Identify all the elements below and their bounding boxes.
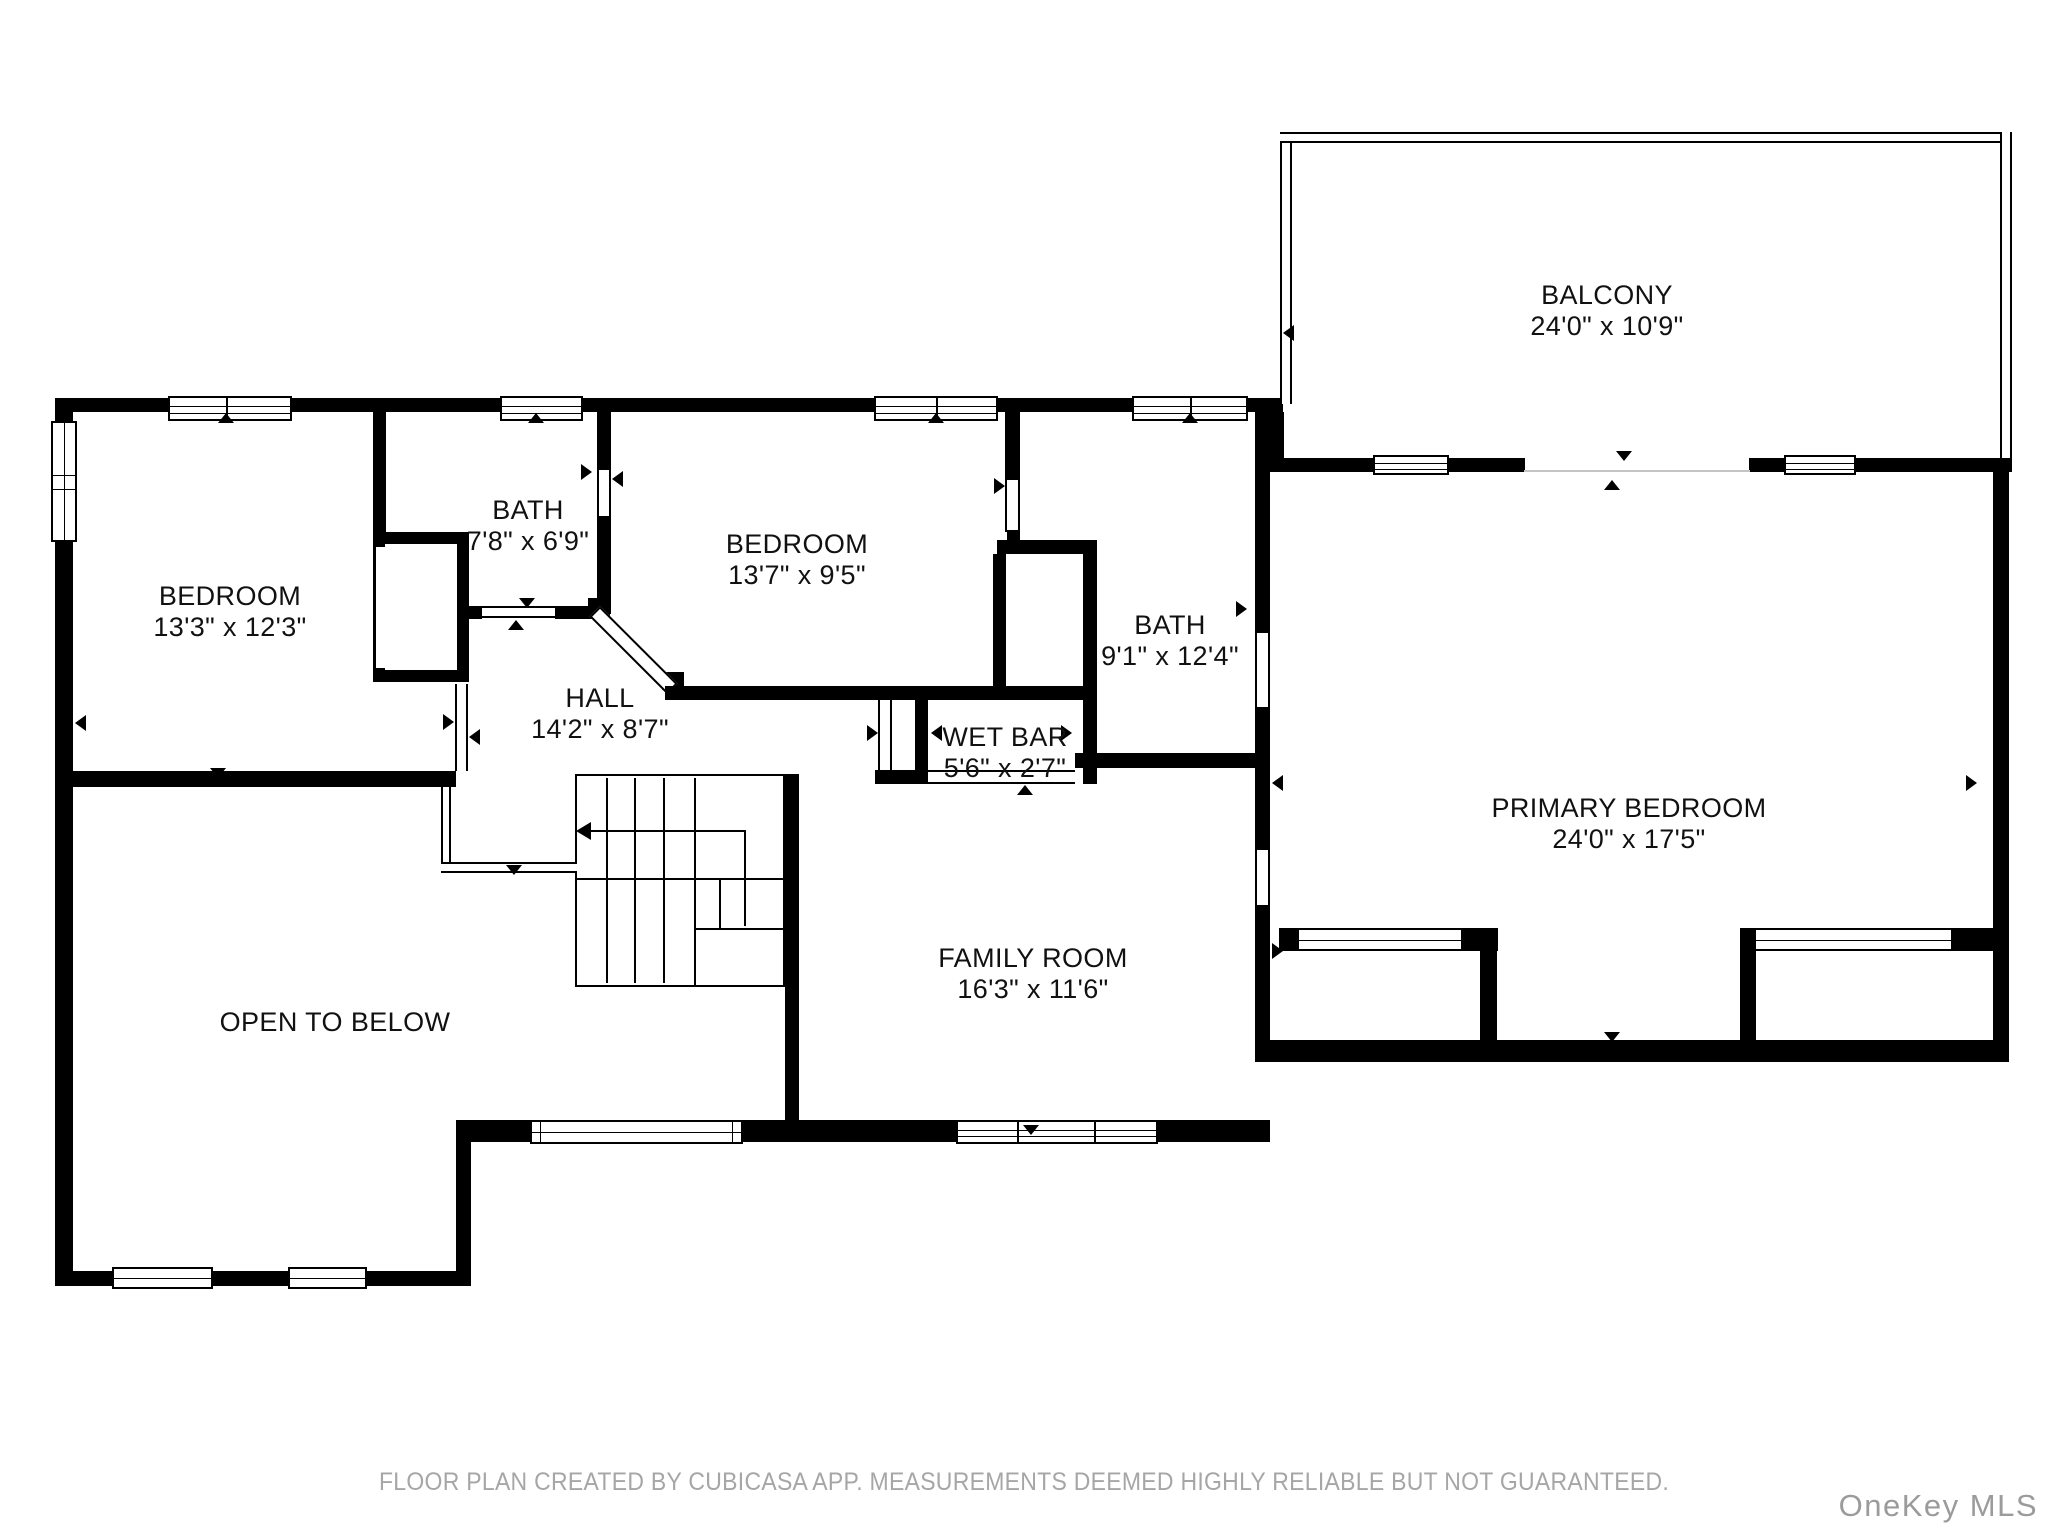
closet-interior — [385, 544, 457, 670]
window-line — [540, 1122, 541, 1142]
room-dims: 16'3" x 11'6" — [938, 974, 1127, 1005]
room-name: PRIMARY BEDROOM — [1491, 793, 1766, 824]
stair-tread-line — [634, 778, 636, 880]
stair-tread-line — [663, 778, 665, 880]
door-direction-arrow — [1616, 451, 1632, 461]
window-line — [170, 406, 290, 407]
closet-sliding-door — [1299, 928, 1461, 951]
door-direction-arrow — [990, 688, 1006, 698]
wall-segment — [1749, 458, 1785, 472]
stair-tread-line — [696, 928, 783, 930]
room-name: BATH — [467, 495, 589, 526]
sliding-door-line — [1756, 940, 1951, 941]
window-line — [114, 1278, 211, 1279]
room-dims: 9'1" x 12'4" — [1101, 641, 1239, 672]
door-direction-arrow — [581, 464, 592, 480]
wall-segment — [665, 686, 1097, 700]
window — [51, 421, 77, 542]
window-tick-arrow — [1023, 1125, 1039, 1135]
wall-segment — [1075, 753, 1267, 768]
stair-direction-arrow — [744, 830, 746, 926]
window-line — [290, 1278, 365, 1279]
door-direction-arrow — [443, 714, 454, 730]
door-opening-line — [1018, 480, 1020, 532]
door-direction-arrow — [1604, 1032, 1620, 1042]
wall-segment — [915, 700, 928, 784]
room-dims: 5'6" x 2'7" — [942, 753, 1067, 784]
floor-plan: BEDROOM 13'3" x 12'3" BATH 7'8" x 6'9" B… — [0, 0, 2048, 1536]
wall-segment — [875, 770, 915, 784]
window — [288, 1267, 367, 1289]
door-opening-line — [1255, 633, 1257, 707]
wall-segment — [1993, 458, 2009, 1062]
window — [956, 1120, 1158, 1144]
room-name: BATH — [1101, 610, 1239, 641]
stair-direction-arrow — [590, 830, 746, 832]
window-line — [64, 423, 65, 540]
door-direction-arrow — [994, 478, 1005, 494]
window-mullion — [1017, 1122, 1019, 1142]
window-line — [958, 1136, 1156, 1137]
room-label-bath-1: BATH 7'8" x 6'9" — [467, 495, 589, 557]
room-label-wet-bar: WET BAR 5'6" x 2'7" — [942, 722, 1067, 784]
room-name: BALCONY — [1530, 280, 1683, 311]
door-opening-line — [1268, 633, 1270, 707]
window-line — [1786, 469, 1854, 470]
closet-sliding-door — [1756, 928, 1951, 951]
sliding-glass-door — [530, 1120, 743, 1144]
window-line — [532, 1132, 741, 1133]
door-opening-line — [466, 684, 468, 771]
wall-segment — [1255, 905, 1270, 1062]
room-dims: 24'0" x 10'9" — [1530, 311, 1683, 342]
door-direction-arrow — [1283, 325, 1294, 341]
room-label-bedroom-2: BEDROOM 13'7" x 9'5" — [726, 529, 868, 591]
window-line — [958, 1130, 1156, 1131]
door-direction-arrow — [210, 768, 226, 778]
sliding-door-line — [1299, 940, 1461, 941]
wall-segment — [55, 771, 456, 787]
door-direction-arrow — [469, 729, 480, 745]
wall-segment — [1005, 412, 1020, 480]
wall-segment — [456, 1134, 471, 1286]
room-label-bath-2: BATH 9'1" x 12'4" — [1101, 610, 1239, 672]
room-dims: 13'3" x 12'3" — [153, 612, 306, 643]
stair-tread-line — [634, 880, 636, 983]
railing — [441, 787, 451, 865]
wall-segment — [785, 774, 799, 1134]
wall-segment — [597, 412, 611, 470]
room-name: OPEN TO BELOW — [220, 1007, 451, 1038]
door-opening — [878, 700, 892, 770]
room-label-balcony: BALCONY 24'0" x 10'9" — [1530, 280, 1683, 342]
wall-segment — [1268, 1040, 2009, 1062]
door-direction-arrow — [931, 725, 942, 741]
footer-disclaimer: FLOOR PLAN CREATED BY CUBICASA APP. MEAS… — [82, 1468, 1966, 1497]
door-direction-arrow — [1017, 785, 1033, 795]
door-direction-arrow — [519, 598, 535, 608]
wall-segment — [1255, 412, 1270, 633]
room-name: FAMILY ROOM — [938, 943, 1127, 974]
door-direction-arrow — [75, 715, 86, 731]
door-opening-line — [1268, 850, 1270, 905]
wall-segment — [373, 412, 386, 532]
door-opening-line — [455, 684, 457, 771]
stair-tread-line — [719, 880, 721, 930]
stair-tread-line — [606, 778, 608, 880]
window — [1373, 455, 1449, 475]
stair-tread-line — [606, 880, 608, 983]
balcony-railing — [2000, 132, 2012, 458]
room-label-bedroom-1: BEDROOM 13'3" x 12'3" — [153, 581, 306, 643]
room-dims: 7'8" x 6'9" — [467, 526, 589, 557]
room-label-open-to-below: OPEN TO BELOW — [220, 1007, 451, 1038]
balcony-railing — [1280, 132, 2012, 143]
wall-segment — [997, 540, 1097, 554]
window-line — [1375, 463, 1447, 464]
window-tick-arrow — [928, 413, 944, 423]
door-direction-arrow — [1604, 480, 1620, 490]
door-opening-line — [609, 470, 611, 516]
balcony-railing — [1280, 132, 1292, 404]
room-name: HALL — [531, 683, 669, 714]
wall-segment — [1083, 554, 1097, 784]
room-label-primary-bedroom: PRIMARY BEDROOM 24'0" x 17'5" — [1491, 793, 1766, 855]
room-label-hall: HALL 14'2" x 8'7" — [531, 683, 669, 745]
room-dims: 24'0" x 17'5" — [1491, 824, 1766, 855]
door-direction-arrow — [508, 620, 524, 630]
wall-segment — [993, 554, 1006, 688]
window-mullion — [1094, 1122, 1096, 1142]
room-name: BEDROOM — [153, 581, 306, 612]
window-line — [1786, 463, 1854, 464]
wall-segment — [1447, 458, 1525, 472]
room-label-family-room: FAMILY ROOM 16'3" x 11'6" — [938, 943, 1127, 1005]
window — [112, 1267, 213, 1289]
window-line — [1375, 469, 1447, 470]
door-opening-line — [1255, 850, 1257, 905]
door-opening-line — [597, 470, 599, 516]
window-tick-arrow — [528, 413, 544, 423]
closet-opening — [376, 547, 386, 668]
closet-wall — [1460, 928, 1498, 951]
wall-segment — [1854, 458, 2012, 472]
window-line — [732, 1122, 733, 1142]
door-opening-line — [482, 616, 556, 618]
watermark: OneKey MLS — [1839, 1488, 2038, 1524]
window-line — [502, 406, 581, 407]
wall-segment — [466, 606, 482, 619]
room-dims: 13'7" x 9'5" — [726, 560, 868, 591]
door-direction-arrow — [506, 865, 522, 875]
door-opening-line — [1005, 480, 1007, 532]
door-direction-arrow — [1966, 775, 1977, 791]
window — [1784, 455, 1856, 475]
diagonal-doorway — [589, 606, 677, 694]
window-line — [53, 489, 75, 490]
window-line — [53, 475, 75, 476]
door-direction-arrow — [612, 471, 623, 487]
door-direction-arrow — [867, 725, 878, 741]
wall-segment — [1270, 458, 1374, 472]
wall-segment — [1255, 707, 1270, 850]
window-tick-arrow — [1182, 413, 1198, 423]
stair-direction-arrowhead — [576, 822, 591, 840]
closet-wall — [1480, 951, 1497, 1040]
stair-tread-line — [663, 880, 665, 983]
room-name: WET BAR — [942, 722, 1067, 753]
room-name: BEDROOM — [726, 529, 868, 560]
door-direction-arrow — [1272, 943, 1283, 959]
closet-wall — [1740, 928, 1756, 1040]
window-tick-arrow — [218, 413, 234, 423]
closet-wall — [1950, 928, 1993, 951]
door-direction-arrow — [1272, 775, 1283, 791]
room-dims: 14'2" x 8'7" — [531, 714, 669, 745]
balcony-door-threshold — [1524, 470, 1750, 472]
stair-tread-line — [694, 778, 696, 985]
